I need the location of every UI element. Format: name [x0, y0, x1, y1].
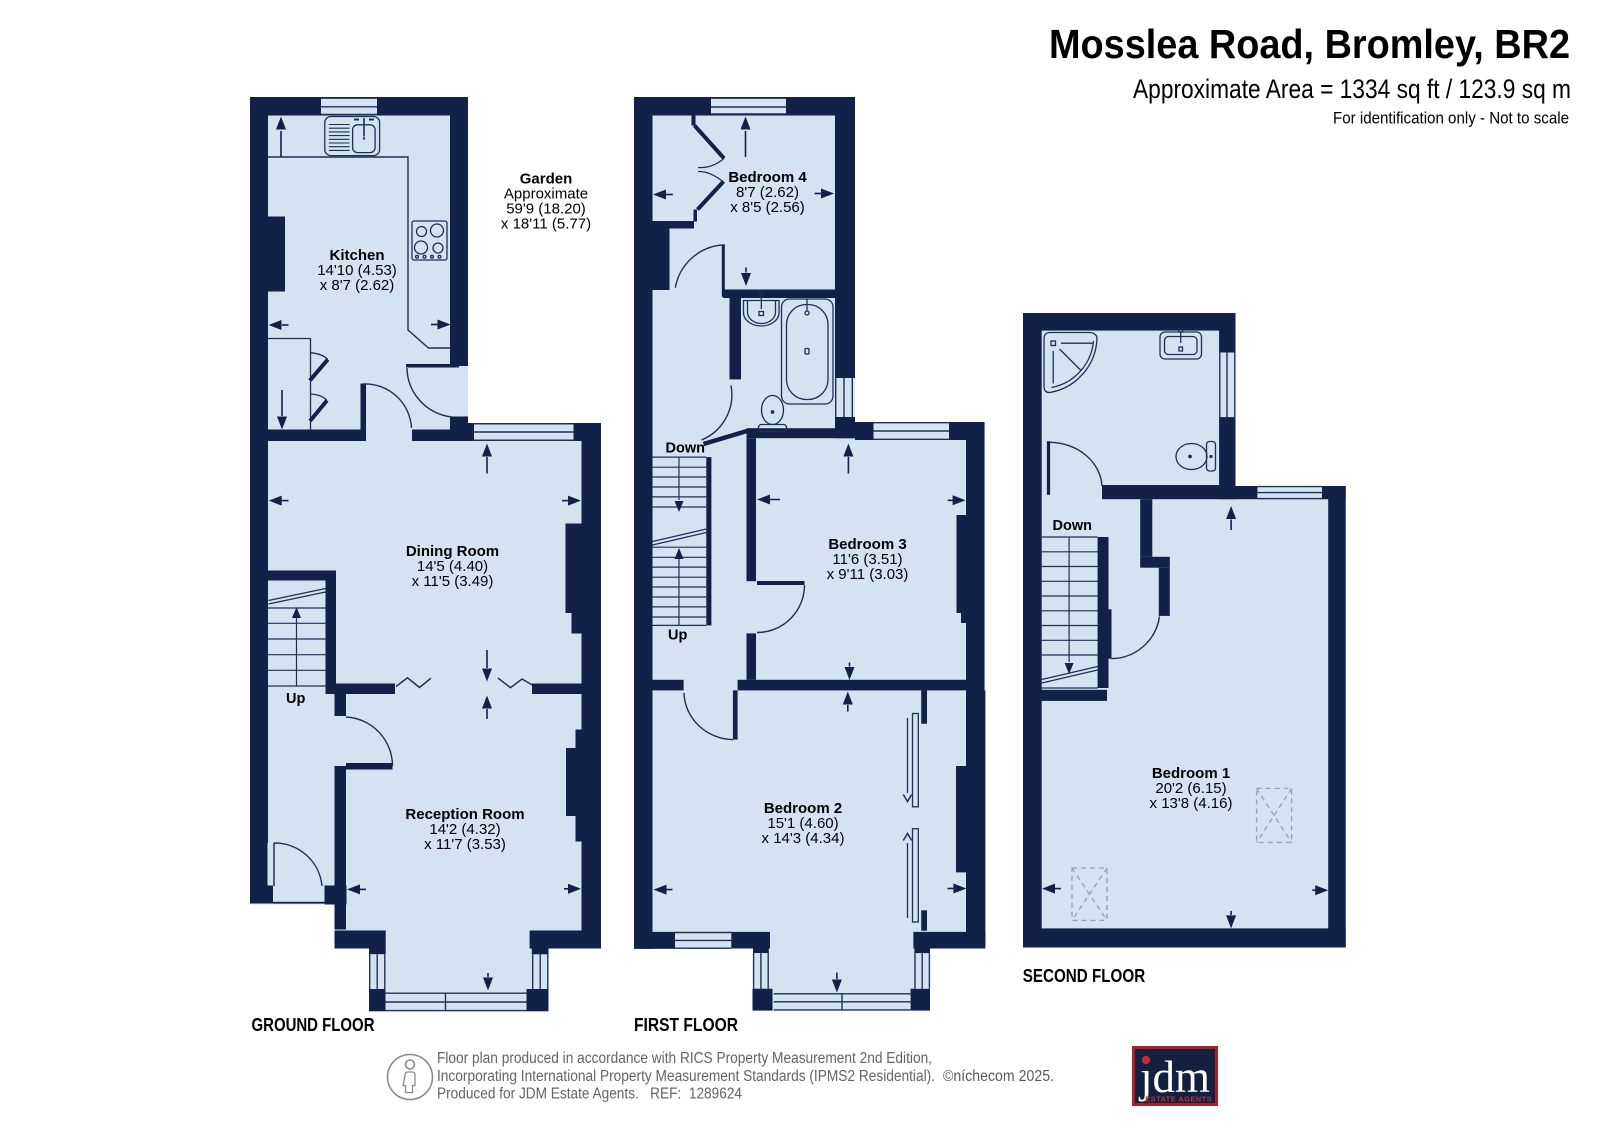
- svg-text:x 8'7 (2.62): x 8'7 (2.62): [320, 277, 395, 294]
- svg-text:Incorporating International Pr: Incorporating International Property Mea…: [437, 1068, 935, 1085]
- svg-text:x 8'5 (2.56): x 8'5 (2.56): [730, 199, 805, 216]
- svg-text:Mosslea Road, Bromley, BR2: Mosslea Road, Bromley, BR2: [1049, 21, 1570, 67]
- svg-text:x 11'7 (3.53): x 11'7 (3.53): [424, 836, 506, 853]
- svg-text:Produced for JDM Estate Agents: Produced for JDM Estate Agents. REF: 128…: [437, 1086, 742, 1103]
- svg-text:GROUND FLOOR: GROUND FLOOR: [252, 1015, 375, 1035]
- svg-text:SECOND FLOOR: SECOND FLOOR: [1023, 966, 1145, 986]
- svg-text:Down: Down: [1053, 518, 1092, 534]
- svg-text:Approximate Area = 1334 sq ft: Approximate Area = 1334 sq ft / 123.9 sq…: [1133, 74, 1571, 104]
- svg-text:FIRST FLOOR: FIRST FLOOR: [634, 1015, 738, 1035]
- svg-text:For identification only - Not: For identification only - Not to scale: [1333, 110, 1569, 128]
- svg-text:x 13'8 (4.16): x 13'8 (4.16): [1150, 795, 1233, 812]
- svg-text:Down: Down: [666, 441, 705, 457]
- svg-text:Up: Up: [286, 691, 305, 707]
- svg-text:x 9'11 (3.03): x 9'11 (3.03): [827, 566, 909, 583]
- svg-text:Up: Up: [668, 628, 687, 644]
- svg-text:x 11'5 (3.49): x 11'5 (3.49): [412, 573, 494, 590]
- svg-text:x 18'11 (5.77): x 18'11 (5.77): [501, 216, 591, 233]
- svg-text:Floor plan produced in accorda: Floor plan produced in accordance with R…: [437, 1050, 932, 1067]
- svg-text:x 14'3 (4.34): x 14'3 (4.34): [762, 830, 845, 847]
- svg-text:ESTATE AGENTS: ESTATE AGENTS: [1145, 1095, 1212, 1104]
- svg-text:©níchecom 2025.: ©níchecom 2025.: [943, 1068, 1054, 1085]
